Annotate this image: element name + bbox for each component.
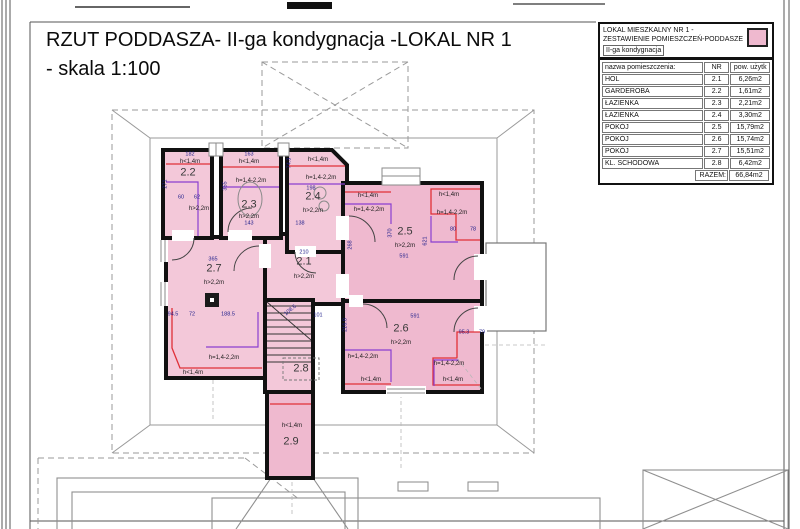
room-nr-cell: 2.1 [704,74,730,85]
room-area-cell: 6,26m2 [730,74,770,85]
room-area-cell: 6,42m2 [730,158,770,169]
room-area-cell: 3,30m2 [730,110,770,121]
room-area-cell: 15,74m2 [730,134,770,145]
room-area-cell: 1,61m2 [730,86,770,97]
room-2-8-stairwell [265,300,313,392]
room-area-cell: 15,79m2 [730,122,770,133]
room-name-cell: POKÓJ [602,134,703,145]
room-name-cell: HOL [602,74,703,85]
legend-row: GARDEROBA 2.2 1,61m2 [602,86,770,97]
title-line-1: RZUT PODDASZA- II-ga kondygnacja -LOKAL … [46,26,512,55]
room-nr-cell: 2.2 [704,86,730,97]
title-line-2: - skala 1:100 [46,55,512,84]
legend-row: POKÓJ 2.7 15,51m2 [602,146,770,157]
room-area-cell: 2,21m2 [730,98,770,109]
legend-row: HOL 2.1 6,26m2 [602,74,770,85]
room-2-5 [343,183,482,301]
room-nr-cell: 2.8 [704,158,730,169]
legend-row: KL. SCHODOWA 2.8 6,42m2 [602,158,770,169]
room-nr-cell: 2.3 [704,98,730,109]
room-nr-cell: 2.6 [704,134,730,145]
legend-row: POKÓJ 2.5 15,79m2 [602,122,770,133]
room-name-cell: POKÓJ [602,146,703,157]
col-header-name: nazwa pomieszczenia: [602,62,703,73]
room-name-cell: ŁAZIENKA [602,110,703,121]
room-name-cell: KL. SCHODOWA [602,158,703,169]
room-name-cell: GARDEROBA [602,86,703,97]
rooms [163,150,482,478]
drawing-page: 2.12.22.32.42.52.62.72.82.9h>2,2mh>2,2mh… [0,0,800,529]
col-header-nr: NR [704,62,730,73]
room-name-cell: ŁAZIENKA [602,98,703,109]
room-2-2 [163,150,212,238]
total-label: RAZEM: [695,170,728,181]
col-header-area: pow. użytk [730,62,770,73]
room-nr-cell: 2.4 [704,110,730,121]
room-schedule-table: LOKAL MIESZKALNY NR 1 - ZESTAWIENIE POMI… [598,22,774,185]
room-color-swatch [747,28,768,47]
room-area-cell: 15,51m2 [730,146,770,157]
room-name-cell: POKÓJ [602,122,703,133]
legend-row: POKÓJ 2.6 15,74m2 [602,134,770,145]
legend-header: LOKAL MIESZKALNY NR 1 - ZESTAWIENIE POMI… [600,24,772,60]
frame-mark [287,2,332,9]
room-2-9 [267,392,313,478]
dormer-window [278,143,289,156]
legend-column-header-row: nazwa pomieszczenia: NR pow. użytk [602,62,770,73]
drawing-title: RZUT PODDASZA- II-ga kondygnacja -LOKAL … [46,26,512,84]
legend-rows: HOL 2.1 6,26m2 GARDEROBA 2.2 1,61m2 ŁAZI… [602,74,770,169]
total-value: 66,84m2 [729,170,769,181]
legend-total-row: RAZEM: 66,84m2 [602,170,770,181]
legend-row: ŁAZIENKA 2.4 3,30m2 [602,110,770,121]
room-nr-cell: 2.5 [704,122,730,133]
legend-header-line3: II-ga kondygnacja [603,45,664,56]
legend-header-line1: LOKAL MIESZKALNY NR 1 - [603,26,769,35]
room-2-3 [221,150,281,238]
room-nr-cell: 2.7 [704,146,730,157]
legend-row: ŁAZIENKA 2.3 2,21m2 [602,98,770,109]
legend-header-line2: ZESTAWIENIE POMIESZCZEŃ-PODDASZE [603,35,769,44]
lower-level-roofs [57,470,788,529]
balcony [486,243,546,331]
